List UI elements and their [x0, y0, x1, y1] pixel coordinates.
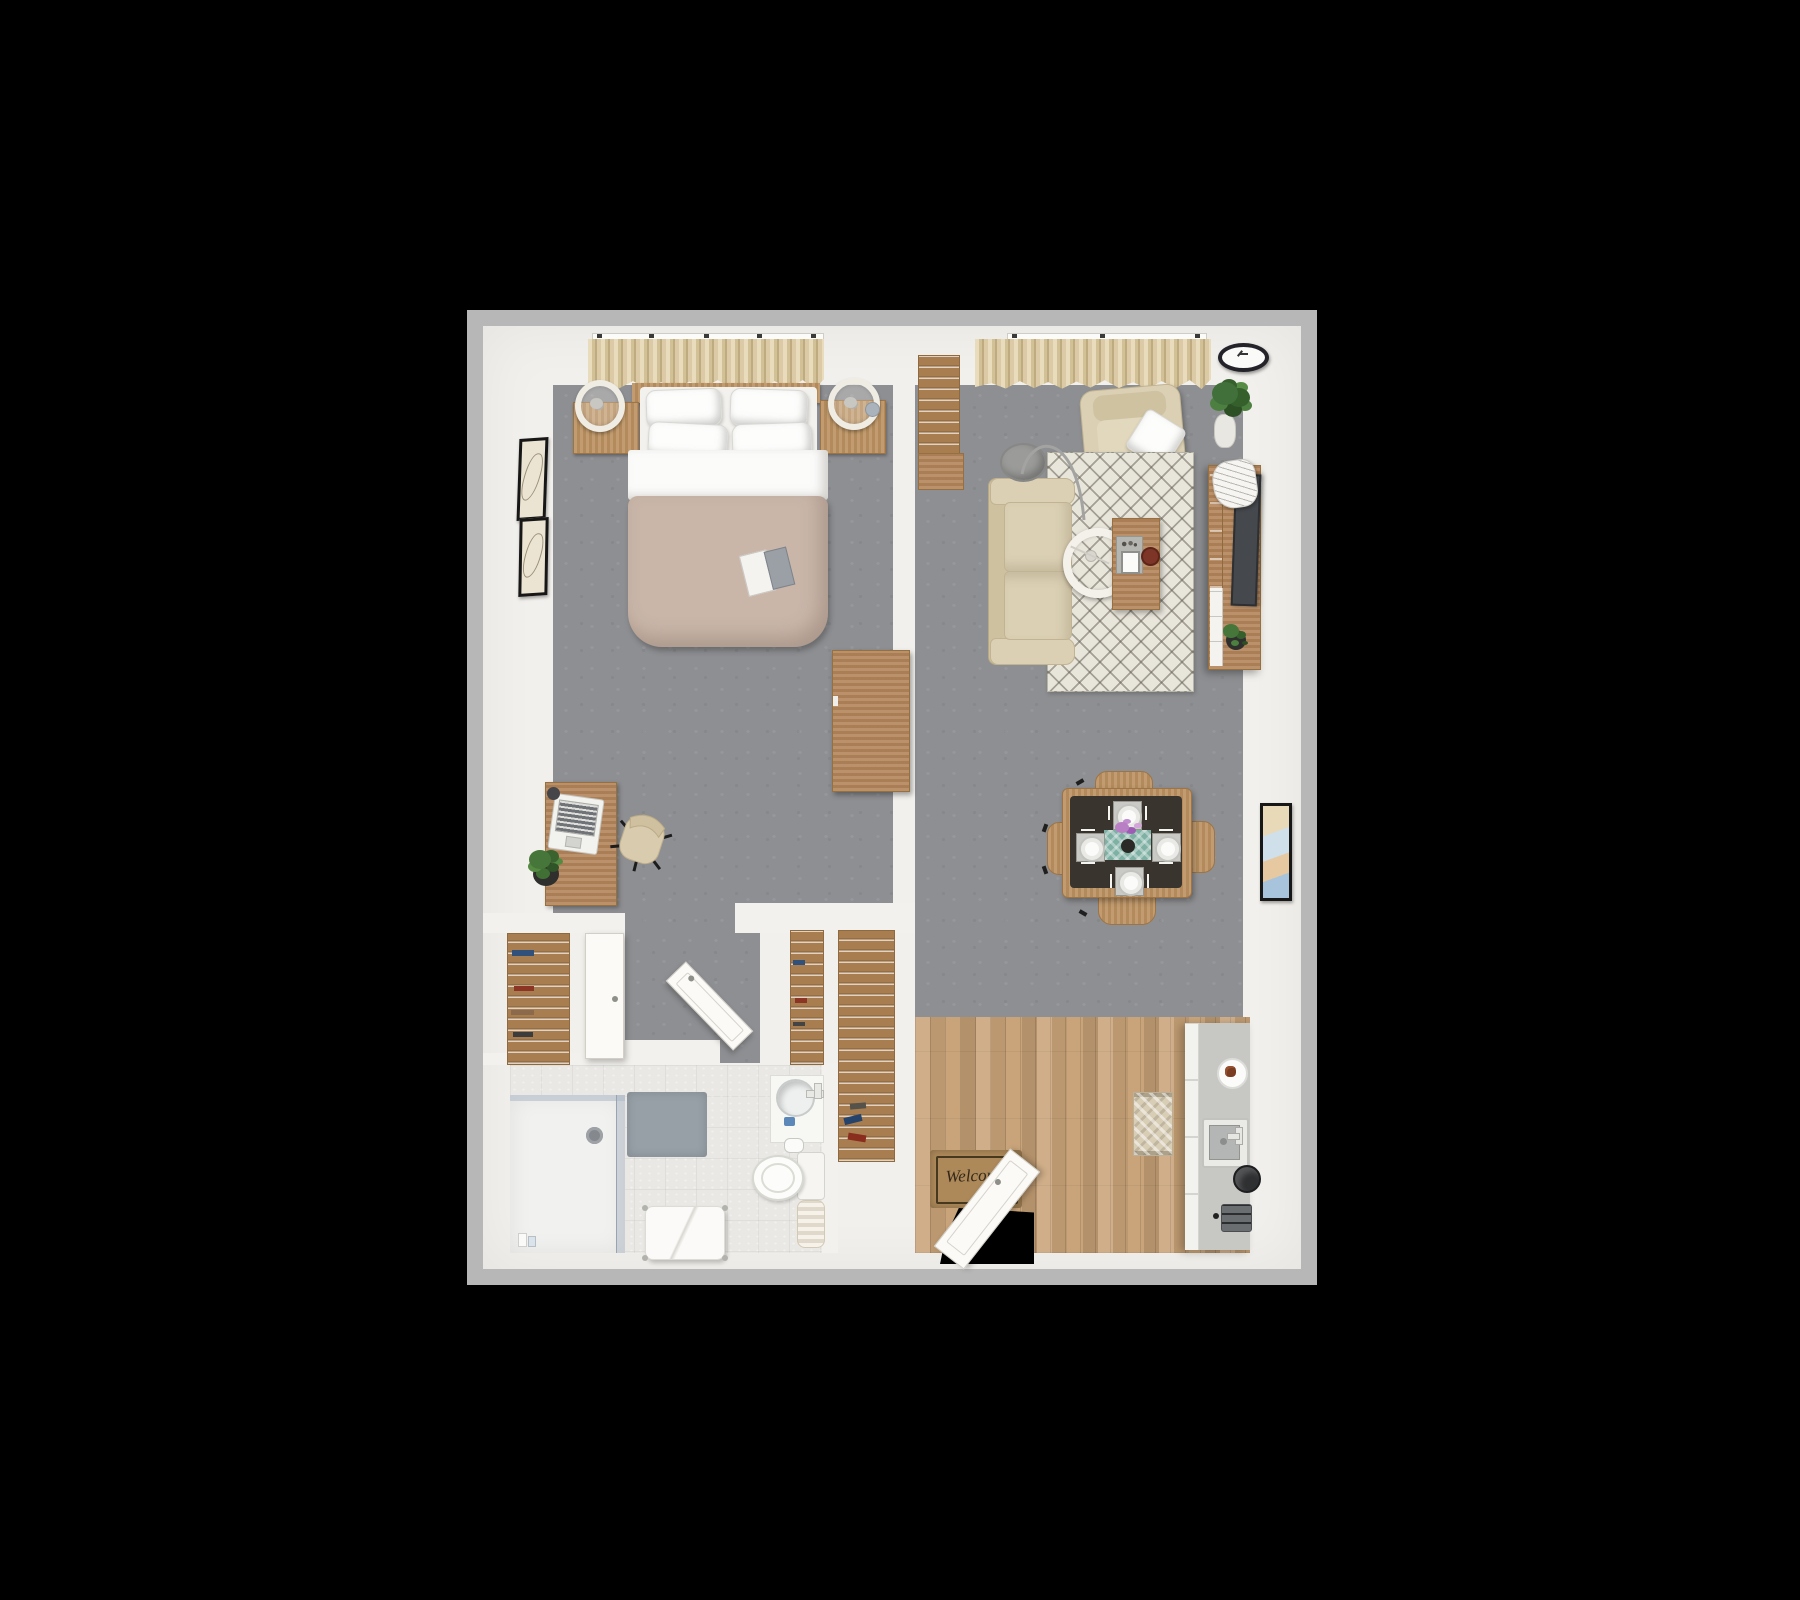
curtain-rail-tick — [1195, 334, 1200, 338]
curtain-rail-tick — [704, 334, 709, 338]
toaster-dial — [1213, 1213, 1219, 1219]
corner-plant-foliage — [1212, 382, 1238, 405]
cutlery — [1081, 862, 1095, 864]
bath-mat — [627, 1092, 707, 1157]
cutlery — [1159, 829, 1173, 831]
dresser — [832, 650, 910, 792]
lamp-bulb — [590, 398, 603, 409]
toilet-seat — [761, 1163, 795, 1193]
shower-head — [586, 1127, 603, 1144]
sink-basin — [776, 1079, 815, 1117]
closet-wall-left — [483, 913, 625, 933]
apartment-floorplan: Welcome — [467, 310, 1317, 1285]
bookcase-base — [918, 453, 964, 490]
desk-cup — [547, 787, 560, 800]
console-plant-foliage — [1223, 624, 1239, 638]
corner-plant-pot — [1214, 414, 1236, 448]
cutlery — [1108, 806, 1110, 820]
towel-cabinet — [797, 1200, 825, 1248]
bathroom-vanity — [770, 1075, 824, 1143]
wall-art-frame — [518, 517, 548, 597]
toilet-bowl — [752, 1155, 804, 1201]
laptop-trackpad — [565, 836, 582, 849]
plate — [1155, 836, 1181, 862]
clock-hand — [1240, 353, 1248, 355]
closet-door — [585, 933, 624, 1059]
toilet-paper-holder — [784, 1138, 804, 1153]
kitchen-unit — [1185, 1023, 1250, 1250]
plate — [1079, 836, 1105, 862]
curtain-rail-tick — [597, 334, 602, 338]
shelf-item — [513, 1032, 533, 1037]
hall-art-frame — [1260, 803, 1292, 901]
office-chair — [605, 806, 677, 880]
cabinet-fronts — [1185, 1023, 1199, 1250]
shelf-item — [514, 986, 534, 991]
shower-glass-side — [616, 1095, 625, 1253]
dresser-handle — [833, 696, 838, 706]
towel-bench — [645, 1206, 725, 1260]
closet-wall-right — [735, 903, 915, 933]
curtain-rail-tick — [757, 334, 762, 338]
wall-art-frame — [517, 437, 549, 521]
bathroom-threshold — [617, 1040, 720, 1065]
nightstand-lamp-left — [575, 380, 625, 432]
cutlery — [1159, 862, 1173, 864]
toiletry-bottle — [518, 1233, 527, 1247]
shower-glass-top — [510, 1095, 625, 1101]
curtain-rail-tick — [811, 334, 816, 338]
tray-items — [1121, 540, 1137, 548]
living-curtains — [975, 339, 1211, 389]
sofa-cushion — [1004, 571, 1072, 640]
bench-leg — [642, 1255, 648, 1261]
shelf-item — [795, 998, 807, 1003]
pantry-shelf — [838, 930, 895, 1162]
wall-clock — [1218, 343, 1269, 372]
floorplan-render-canvas: { "scene": { "kind": "3D top-down floor … — [0, 0, 1800, 1600]
lamp-bulb — [844, 397, 857, 408]
shelf-item — [512, 950, 534, 956]
bedroom-curtains — [588, 339, 824, 389]
flower-centerpiece — [1115, 822, 1129, 833]
console-drawers — [1210, 588, 1223, 666]
arc-lamp-arm — [1012, 428, 1102, 543]
bed-sheet — [628, 450, 828, 500]
bed — [628, 387, 828, 647]
sofa-arm — [990, 638, 1075, 665]
shelf-item — [793, 1022, 805, 1026]
art-scribble — [520, 531, 547, 578]
flower-vase — [1121, 839, 1135, 853]
decor-bowl — [1141, 547, 1160, 566]
cutlery — [1147, 874, 1149, 888]
shelf-item — [511, 1010, 534, 1015]
kitchen-mat — [1133, 1092, 1173, 1156]
bench-leg — [722, 1255, 728, 1261]
shower — [510, 1095, 625, 1253]
faucet — [814, 1083, 822, 1099]
tablet — [1121, 551, 1140, 574]
bed-duvet — [628, 496, 828, 647]
kettle — [1233, 1165, 1261, 1193]
curtain-rail-tick — [1100, 334, 1105, 338]
coffee-table-tray — [1116, 536, 1143, 574]
cutlery — [1145, 806, 1147, 820]
sink-drain — [1220, 1138, 1227, 1145]
pastry — [1225, 1066, 1236, 1077]
cutlery — [1110, 874, 1112, 888]
shelf-item — [793, 960, 805, 965]
bench-leg — [722, 1205, 728, 1211]
curtain-rail-tick — [1012, 334, 1017, 338]
bookcase — [918, 355, 960, 457]
toothbrush-cup — [784, 1117, 795, 1126]
toiletry-bottle — [528, 1236, 536, 1247]
toaster — [1221, 1204, 1252, 1232]
plate — [1118, 870, 1144, 896]
cutlery — [1081, 829, 1095, 831]
curtain-rail-tick — [649, 334, 654, 338]
desk-plant-foliage — [529, 850, 551, 869]
nightstand-cup — [865, 402, 880, 417]
art-scribble — [518, 452, 547, 502]
laptop — [547, 793, 604, 855]
bench-leg — [642, 1205, 648, 1211]
laptop-keyboard — [555, 799, 599, 836]
door-knob — [612, 996, 618, 1002]
kitchen-faucet — [1227, 1133, 1240, 1140]
